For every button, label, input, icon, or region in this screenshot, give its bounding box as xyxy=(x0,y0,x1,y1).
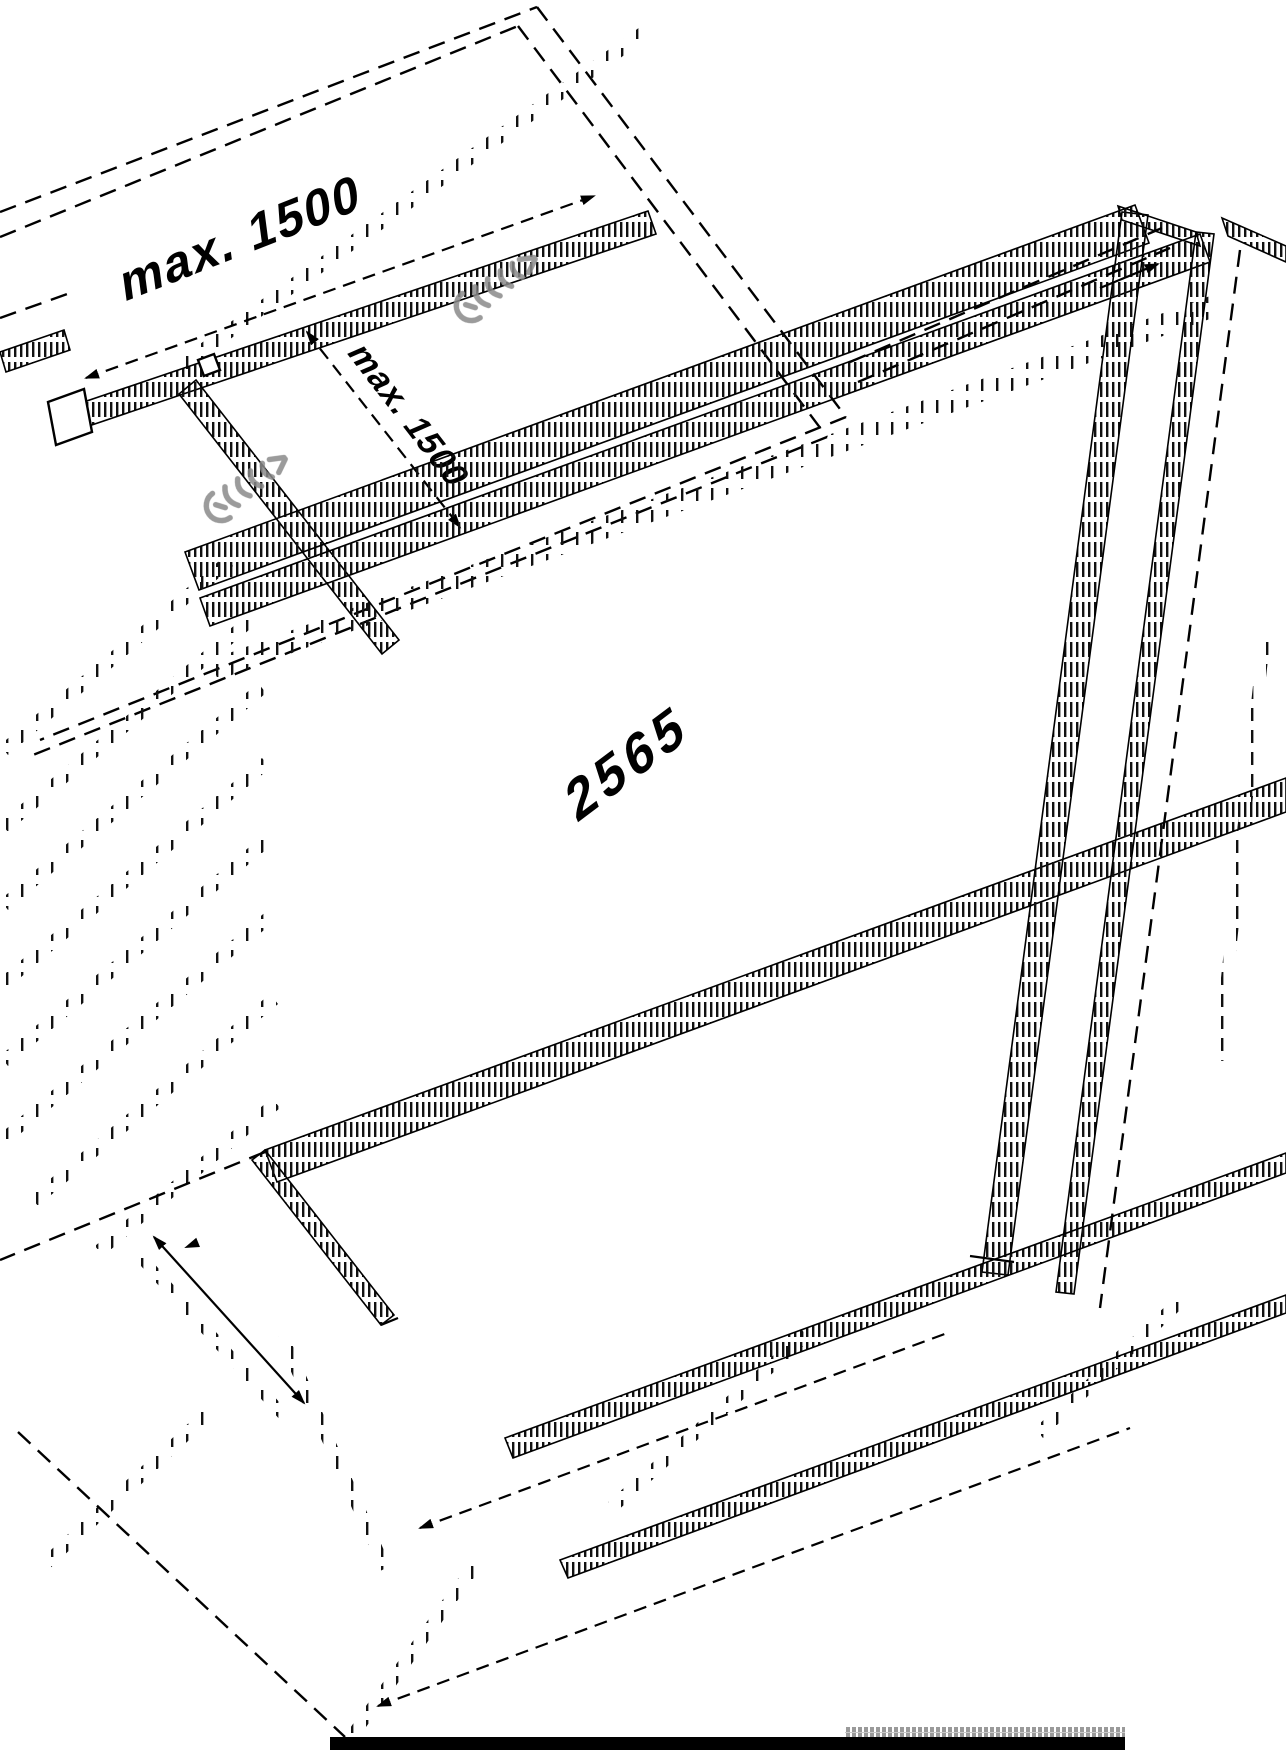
arrowhead-icon xyxy=(182,1238,200,1253)
bottom-construction xyxy=(18,1153,1286,1745)
dimension-label-top: max. 1500 xyxy=(117,162,364,314)
assembly-diagram-page: max. 1500 max. 1500 2565 xyxy=(0,0,1286,1750)
bottom-black-bar xyxy=(330,1737,1125,1750)
bottom-dimension-line xyxy=(154,1237,304,1403)
bottom-bar-group xyxy=(330,1727,1125,1750)
rail-end-cap xyxy=(48,389,92,445)
plank-length-label: 2565 xyxy=(558,689,696,835)
top-rail xyxy=(0,211,656,445)
upper-plank-edges xyxy=(185,205,1218,680)
assembly-diagram: max. 1500 max. 1500 2565 xyxy=(0,0,1286,1750)
gray-checker-strip xyxy=(845,1727,1125,1738)
